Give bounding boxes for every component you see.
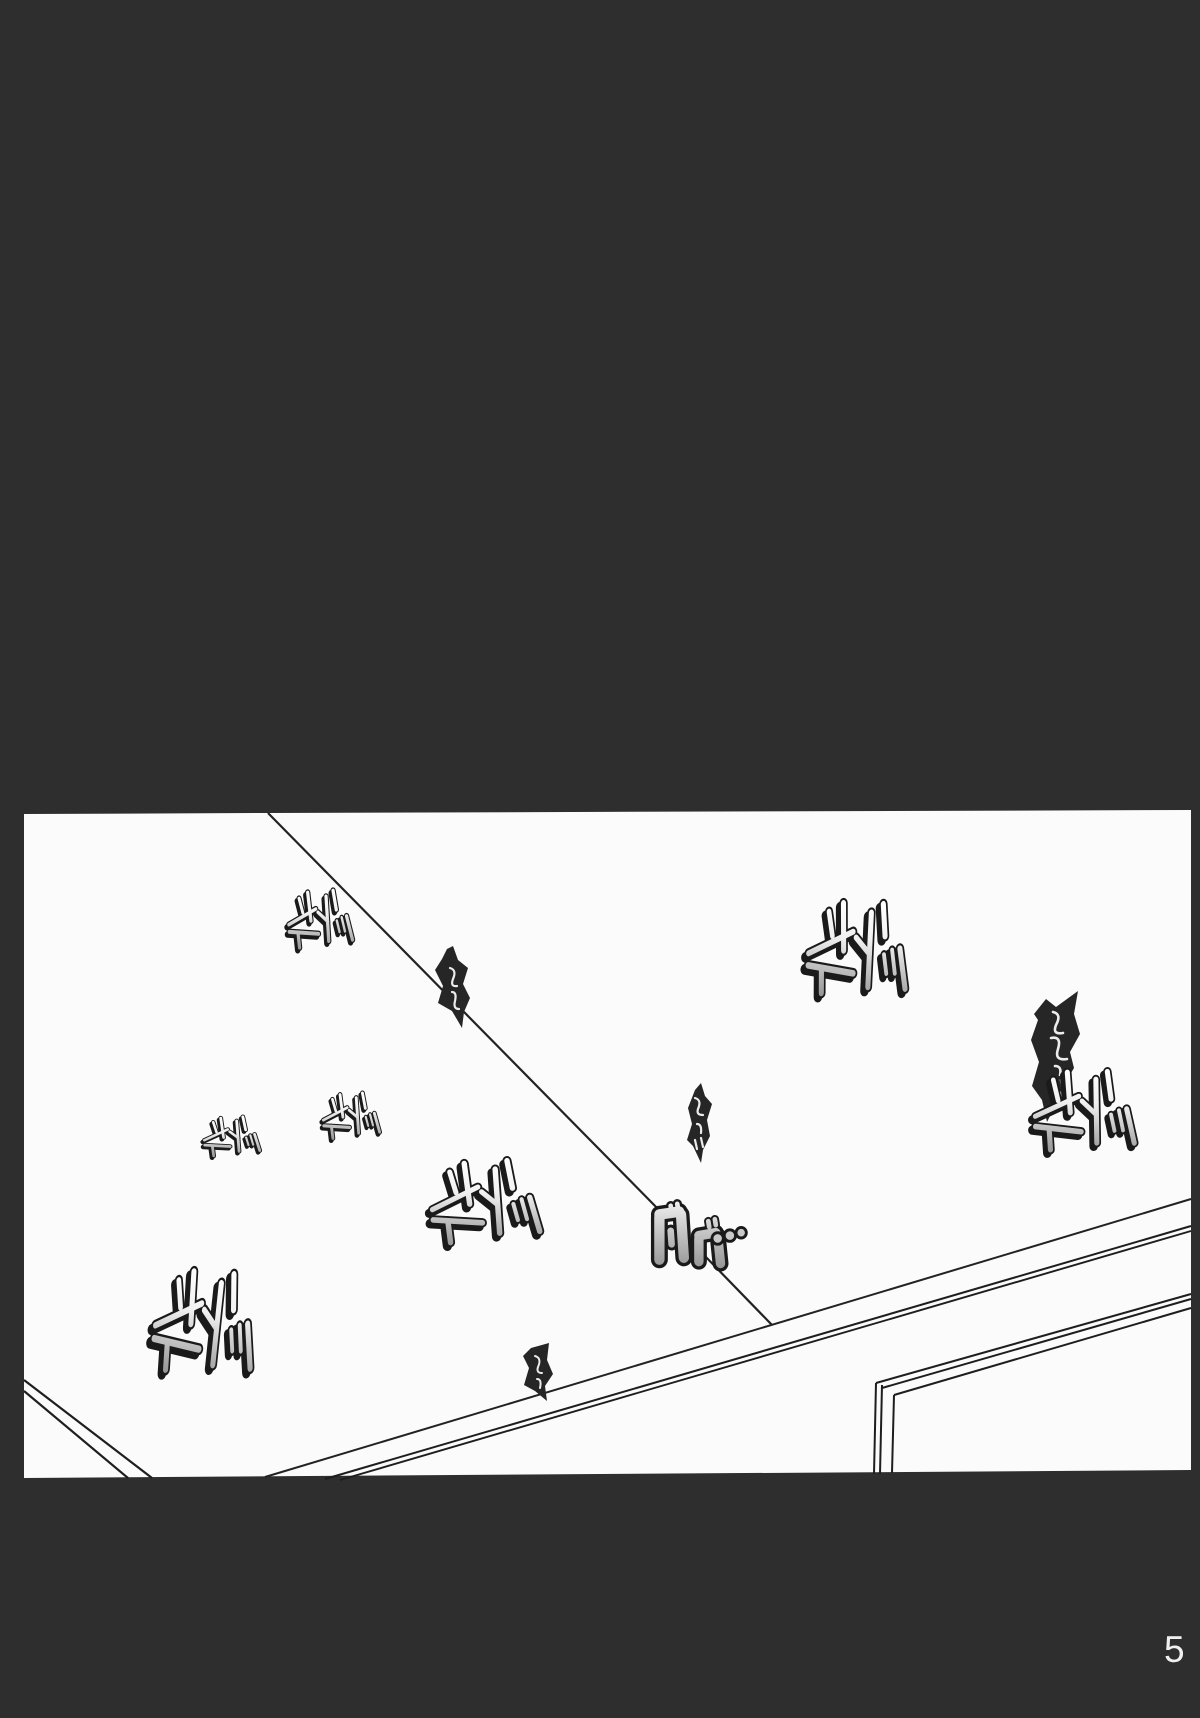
svg-text:5: 5 — [1164, 1629, 1185, 1670]
